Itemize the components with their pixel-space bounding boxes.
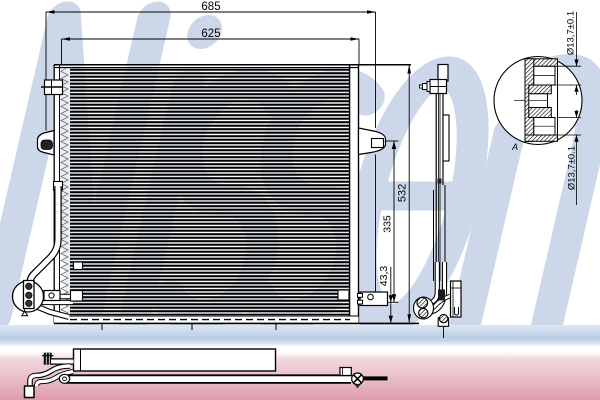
svg-text:335: 335	[382, 215, 394, 233]
svg-text:A: A	[511, 142, 518, 152]
svg-text:532: 532	[397, 184, 409, 202]
svg-text:685: 685	[201, 1, 220, 13]
svg-text:625: 625	[201, 28, 220, 40]
svg-text:43,3: 43,3	[378, 266, 390, 287]
svg-text:Ø13,7±0.1: Ø13,7±0.1	[566, 11, 577, 55]
svg-text:Ø13,7±0.1: Ø13,7±0.1	[567, 146, 578, 190]
